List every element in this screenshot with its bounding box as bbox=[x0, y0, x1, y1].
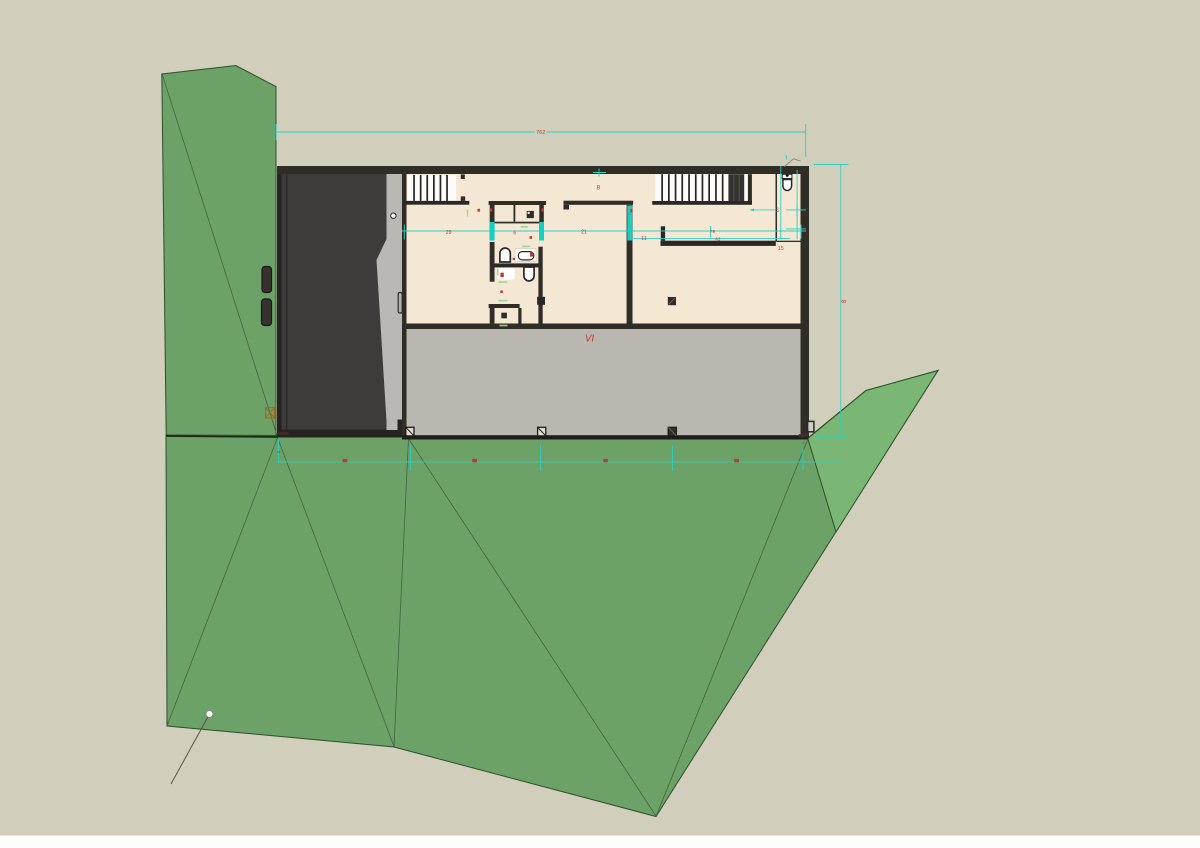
svg-text:11: 11 bbox=[641, 236, 647, 242]
svg-text:762: 762 bbox=[536, 130, 545, 136]
svg-text:10: 10 bbox=[775, 207, 780, 213]
svg-text:43: 43 bbox=[715, 237, 721, 243]
svg-text:29: 29 bbox=[446, 230, 452, 236]
svg-text:79: 79 bbox=[710, 229, 716, 235]
svg-text:15: 15 bbox=[778, 246, 784, 252]
svg-text:4: 4 bbox=[277, 451, 283, 454]
svg-text:8: 8 bbox=[597, 185, 601, 192]
svg-text:VI: VI bbox=[585, 334, 595, 345]
svg-text:6: 6 bbox=[513, 231, 516, 237]
svg-text:21: 21 bbox=[581, 230, 587, 236]
